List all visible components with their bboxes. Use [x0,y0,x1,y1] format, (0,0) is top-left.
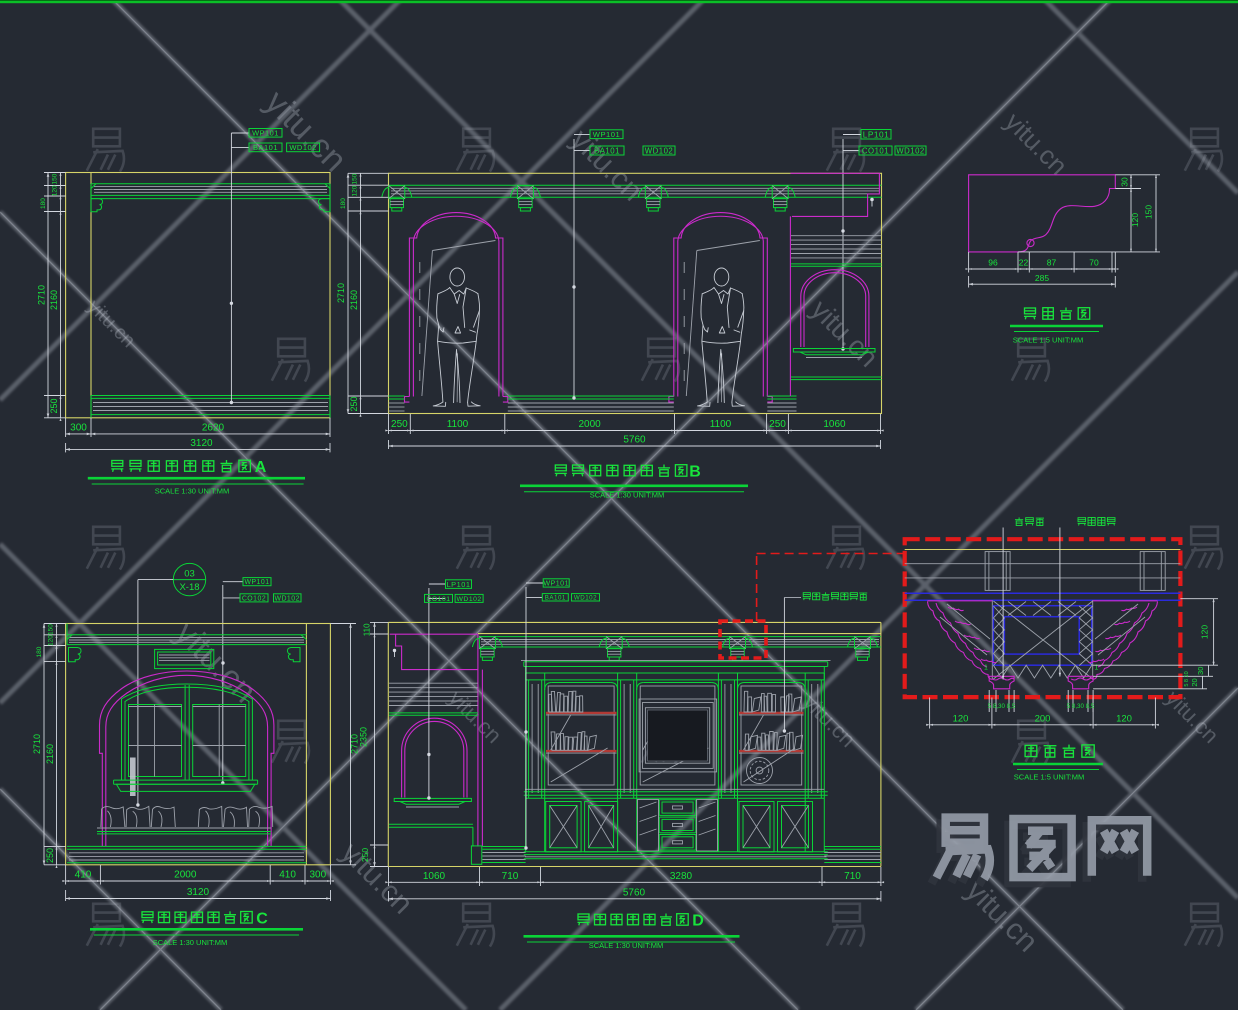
svg-text:200: 200 [1035,713,1051,724]
svg-text:1: 1 [984,665,988,672]
svg-text:30: 30 [1196,667,1205,675]
svg-text:410: 410 [279,870,296,881]
svg-text:LP101: LP101 [863,129,890,139]
svg-text:5 8,30 8,5: 5 8,30 8,5 [1067,703,1095,710]
svg-text:LP101: LP101 [447,580,471,589]
svg-text:1100: 1100 [447,419,469,430]
svg-text:SCALE 1:30 UNIT:MM: SCALE 1:30 UNIT:MM [590,491,665,500]
svg-text:710: 710 [844,871,861,882]
svg-text:WD102: WD102 [896,146,925,155]
svg-text:3120: 3120 [187,887,210,898]
svg-text:1060: 1060 [823,419,846,430]
svg-text:X-18: X-18 [179,582,199,593]
svg-text:2160: 2160 [45,744,55,764]
svg-text:A: A [255,459,267,476]
svg-text:410: 410 [75,870,92,881]
svg-text:110: 110 [363,623,372,636]
svg-text:SCALE 1:30 UNIT:MM: SCALE 1:30 UNIT:MM [155,487,230,496]
svg-text:BA101: BA101 [253,143,278,152]
svg-text:250: 250 [360,848,370,862]
svg-text:WP101: WP101 [252,129,279,138]
svg-text:SCALE 1:5 UNIT:MM: SCALE 1:5 UNIT:MM [1014,773,1084,782]
svg-text:87: 87 [1047,258,1057,268]
svg-text:250: 250 [391,419,408,430]
svg-text:SCALE 1:30 UNIT:MM: SCALE 1:30 UNIT:MM [589,941,664,950]
svg-text:285: 285 [1035,273,1049,283]
svg-text:CO102: CO102 [242,595,266,602]
svg-text:96: 96 [988,258,998,268]
svg-text:150: 150 [48,624,55,635]
svg-text:150: 150 [52,173,59,184]
svg-text:150: 150 [352,173,359,184]
svg-text:B: B [689,464,701,481]
svg-text:C: C [256,910,268,927]
svg-text:710: 710 [502,871,519,882]
svg-text:20: 20 [1190,678,1199,686]
svg-text:5760: 5760 [623,434,646,445]
svg-text:70: 70 [1089,258,1099,268]
svg-text:120: 120 [1116,713,1132,724]
svg-text:180: 180 [36,646,43,657]
svg-text:WD102: WD102 [274,595,299,602]
svg-text:WD102: WD102 [645,146,674,155]
svg-text:5 8 10: 5 8 10 [1184,671,1190,686]
svg-text:5760: 5760 [623,887,646,898]
svg-text:3280: 3280 [670,871,693,882]
svg-text:WD102: WD102 [457,596,482,603]
svg-text:180: 180 [340,198,347,209]
svg-text:2160: 2160 [49,290,59,310]
svg-text:SCALE 1:5 UNIT:MM: SCALE 1:5 UNIT:MM [1013,336,1083,345]
svg-text:250: 250 [45,848,55,863]
svg-text:300: 300 [70,423,87,434]
svg-text:1060: 1060 [423,871,446,882]
svg-text:CO101: CO101 [426,596,450,603]
svg-text:120: 120 [48,635,55,646]
svg-text:120: 120 [1200,625,1210,639]
svg-text:250: 250 [49,398,59,413]
svg-text:5 8,30 8,5: 5 8,30 8,5 [988,703,1016,710]
svg-text:WP101: WP101 [593,130,620,139]
svg-text:22: 22 [1019,258,1029,268]
svg-text:SCALE 1:30 UNIT:MM: SCALE 1:30 UNIT:MM [153,938,228,947]
svg-text:BA101: BA101 [545,594,566,601]
svg-text:2000: 2000 [578,419,601,430]
svg-text:250: 250 [769,419,786,430]
svg-text:120: 120 [1130,213,1140,227]
svg-text:1100: 1100 [710,419,732,430]
svg-text:2620: 2620 [202,423,225,434]
svg-text:2710: 2710 [37,285,47,305]
svg-text:120: 120 [352,185,359,196]
svg-text:300: 300 [309,870,326,881]
svg-text:30: 30 [1120,177,1130,187]
svg-text:120: 120 [953,713,969,724]
svg-text:2710: 2710 [336,283,346,303]
svg-text:BA101: BA101 [594,146,620,155]
svg-text:2000: 2000 [174,870,197,881]
svg-text:250: 250 [349,396,359,411]
svg-text:03: 03 [184,568,195,579]
svg-text:2710: 2710 [32,734,42,754]
svg-text:2350: 2350 [359,727,369,747]
svg-text:180: 180 [40,198,47,209]
svg-text:WP101: WP101 [244,579,269,586]
svg-text:CO101: CO101 [862,146,889,155]
svg-text:WP101: WP101 [543,580,569,588]
svg-text:WD102: WD102 [289,143,317,152]
svg-text:WD102: WD102 [574,594,597,601]
svg-text:3120: 3120 [190,438,213,449]
svg-text:150: 150 [1144,205,1154,219]
svg-text:2160: 2160 [349,290,359,310]
svg-text:D: D [692,913,704,930]
svg-text:120: 120 [52,185,59,196]
